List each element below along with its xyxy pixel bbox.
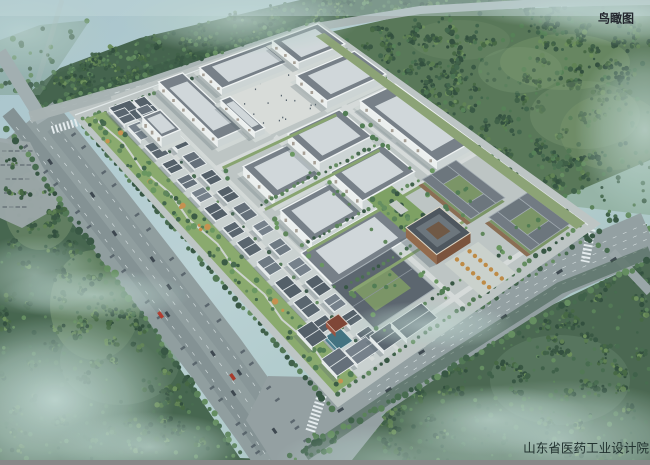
svg-text:鸟瞰图: 鸟瞰图 [598, 11, 634, 26]
svg-text:山东省医药工业设计院: 山东省医药工业设计院 [523, 442, 649, 456]
